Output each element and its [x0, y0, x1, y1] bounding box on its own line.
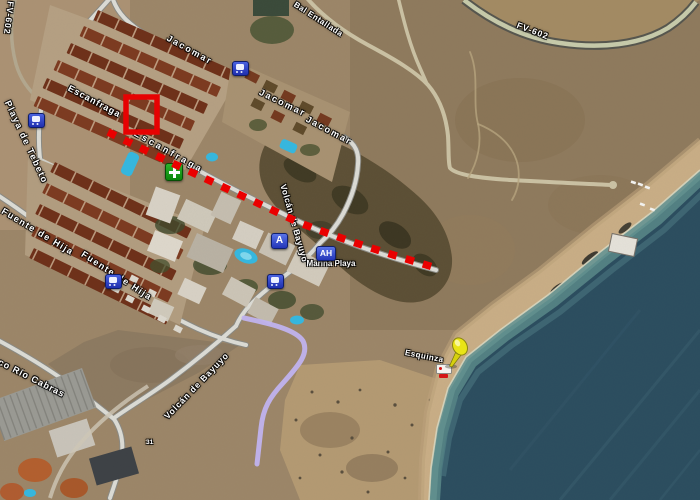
pins-layer	[0, 0, 700, 500]
satellite-map[interactable]: FV-602 Jacomar Jacomar Jacomar Bal Ental…	[0, 0, 700, 500]
map-pushpin-icon[interactable]	[441, 336, 471, 375]
